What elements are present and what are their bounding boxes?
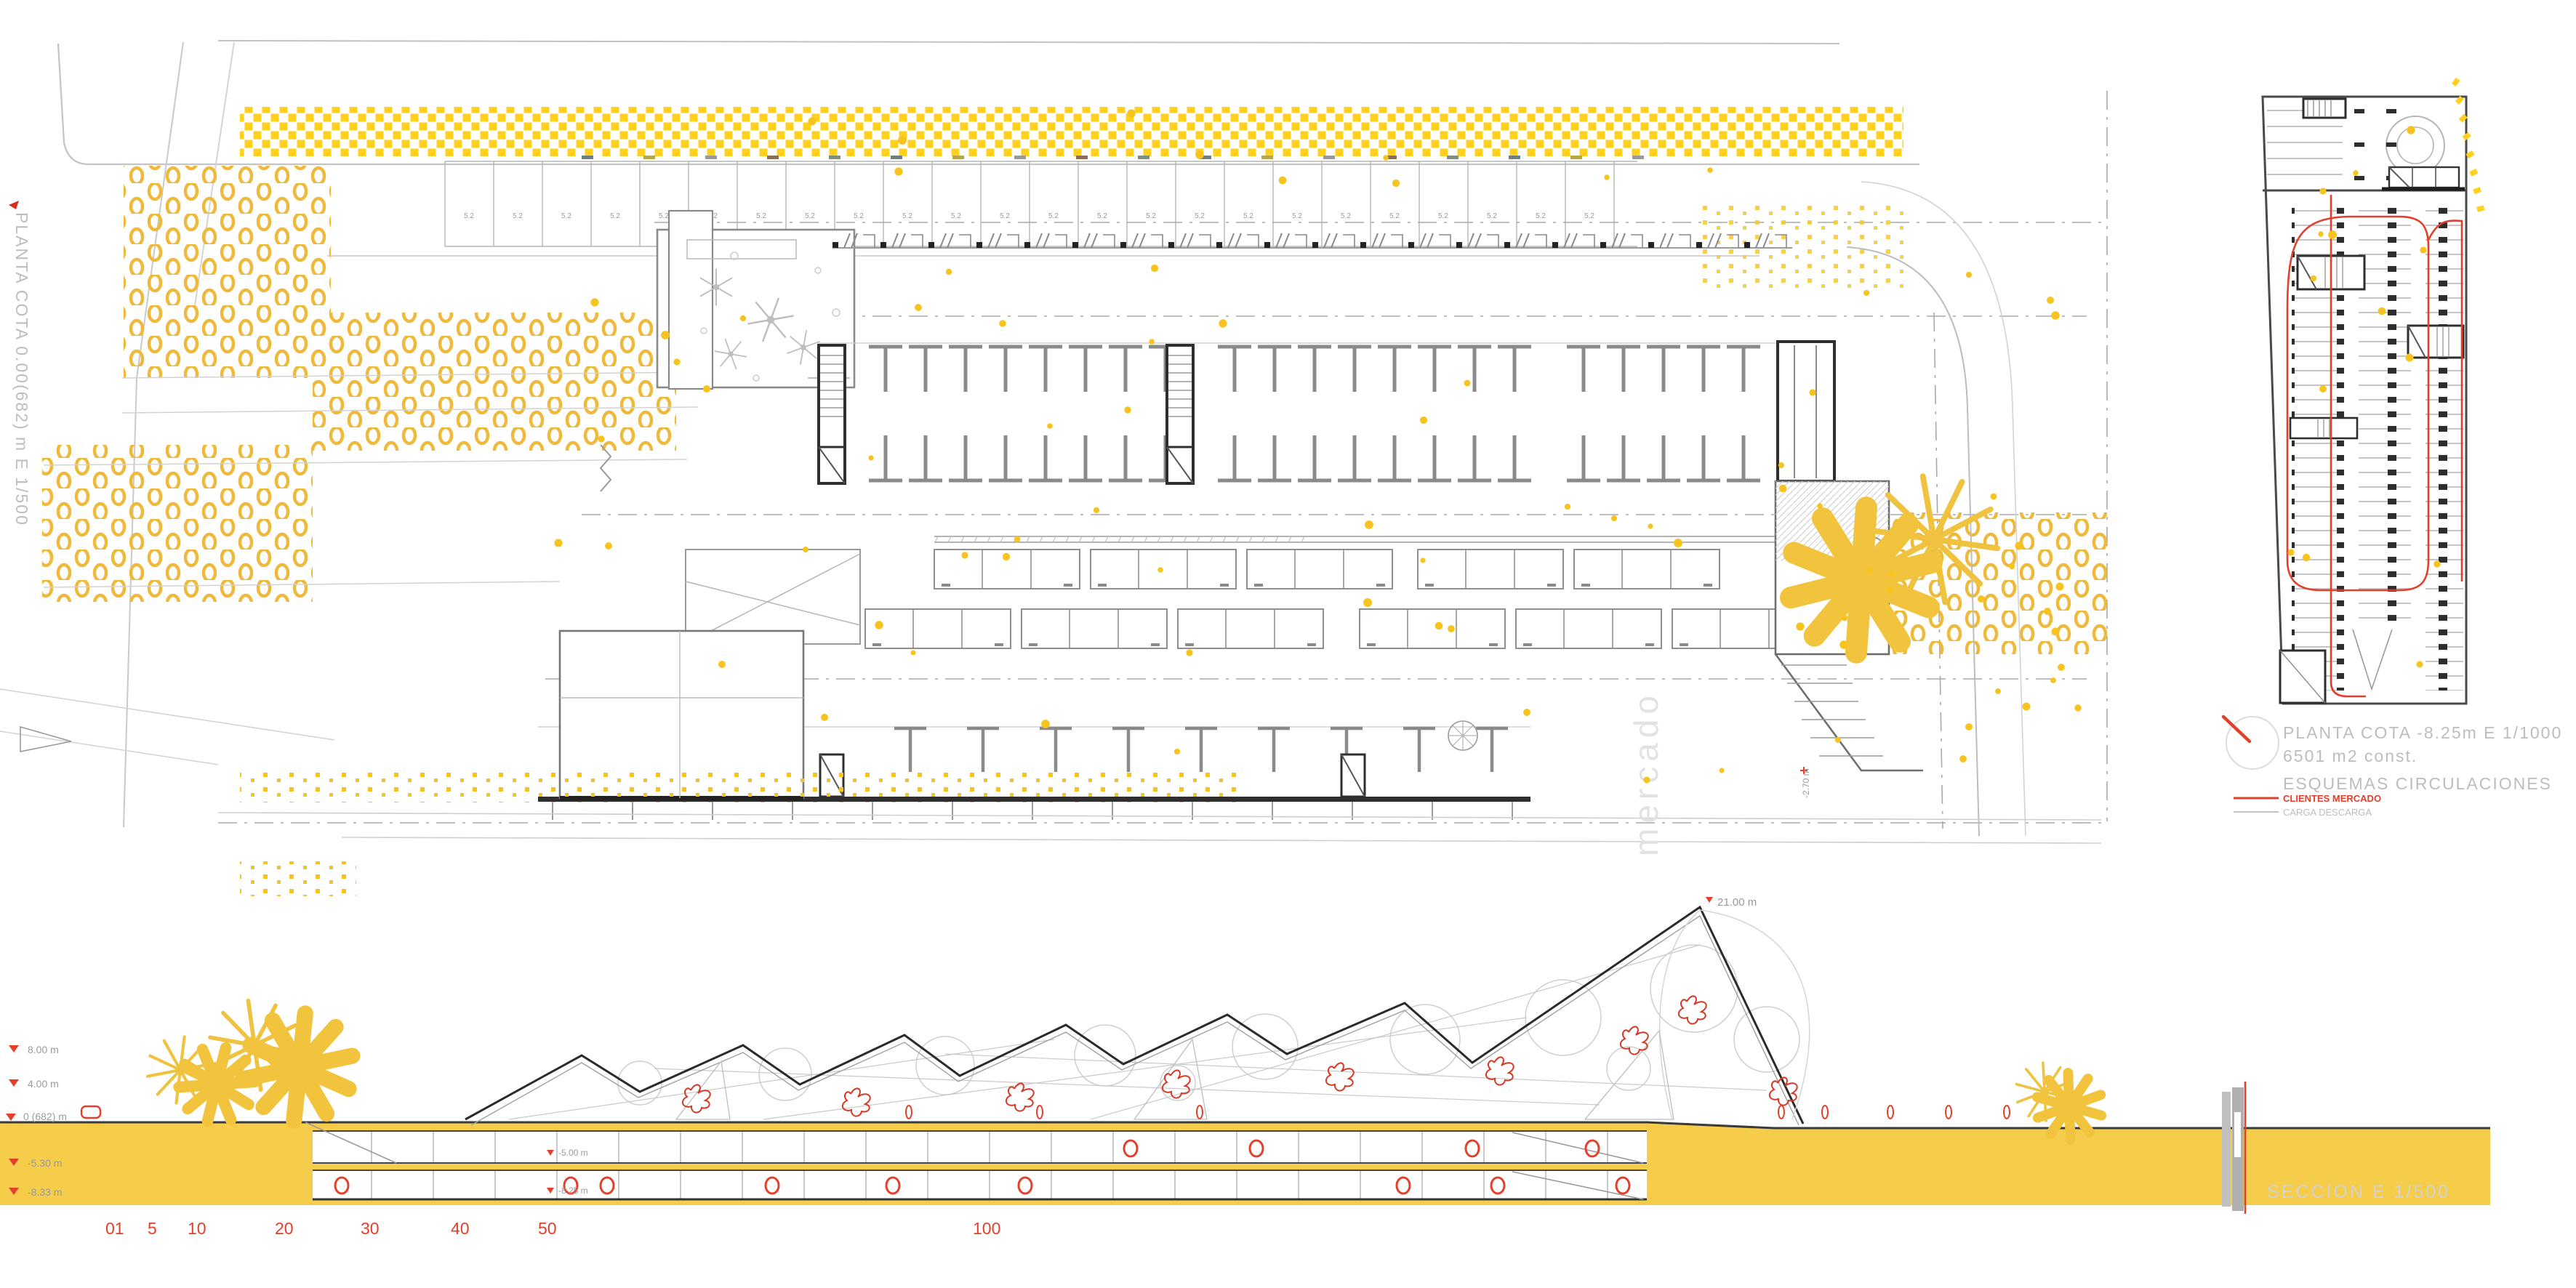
yellow-dot xyxy=(999,320,1006,327)
yellow-dot xyxy=(554,539,562,547)
yellow-dot xyxy=(1937,571,1942,576)
yellow-dot xyxy=(1978,595,1985,603)
yellow-dot xyxy=(803,547,808,552)
yellow-dot xyxy=(1151,265,1158,272)
yellow-dot xyxy=(1383,155,1389,161)
bay-dim-label: 5.2 xyxy=(1536,212,1546,220)
yellow-dot xyxy=(2407,126,2415,134)
yellow-dot xyxy=(2056,583,2064,591)
car-speck xyxy=(1323,156,1335,159)
yellow-dot xyxy=(2050,677,2056,683)
yellow-dot xyxy=(2318,231,2323,236)
mid-left-ramp xyxy=(686,550,860,644)
car-speck xyxy=(1261,156,1273,159)
level-8: 8.00 m xyxy=(28,1044,59,1055)
bay-dim-label: 5.2 xyxy=(756,212,766,220)
yellow-dot xyxy=(1886,586,1893,593)
yellow-dot xyxy=(1149,339,1155,345)
yellow-dot xyxy=(605,542,612,550)
section-elevator xyxy=(2222,1082,2245,1214)
yellow-dot xyxy=(1866,567,1873,573)
yellow-dot xyxy=(1863,290,1869,296)
mercado-watermark: mercado xyxy=(1627,691,1665,856)
parking-caption-1: PLANTA COTA -8.25m E 1/1000 xyxy=(2283,723,2562,742)
stair-core-2 xyxy=(1167,345,1193,483)
bay-dim-label: 5.2 xyxy=(1584,212,1594,220)
bay-dim-label: 5.2 xyxy=(1048,212,1059,220)
yellow-dot xyxy=(868,455,873,460)
yellow-dot xyxy=(2074,704,2081,711)
section-title: SECCION E 1/500 xyxy=(2267,1182,2450,1202)
yellow-dot xyxy=(961,552,968,558)
bay-dim-label: 5.2 xyxy=(1243,212,1253,220)
top-stair xyxy=(2303,99,2346,118)
yellow-dot xyxy=(1839,640,1848,649)
bay-dim-label: 5.2 xyxy=(561,212,571,220)
level-m5: -5.30 m xyxy=(28,1157,62,1169)
car-speck xyxy=(829,156,840,159)
yellow-dot xyxy=(1127,109,1135,117)
bay-dim-label: 5.2 xyxy=(902,212,912,220)
yellow-dot xyxy=(1643,776,1650,783)
yellow-dot xyxy=(1041,720,1050,728)
car-speck xyxy=(891,156,902,159)
legend-label-gray: CARGA DESCARGA xyxy=(2283,807,2372,818)
yellow-dot xyxy=(1648,523,1653,528)
yellow-dot xyxy=(1842,615,1848,621)
yellow-dot xyxy=(1094,507,1099,513)
car-speck xyxy=(1138,156,1149,159)
yellow-dot xyxy=(1435,622,1443,630)
yellow-dot xyxy=(910,650,915,655)
yellow-dot xyxy=(2353,170,2359,176)
yellow-dot xyxy=(2052,628,2060,636)
yellow-dot xyxy=(1523,709,1530,716)
stair-core-1 xyxy=(819,345,845,483)
car-speck xyxy=(643,156,655,159)
yellow-dot xyxy=(1835,737,1841,743)
scale-40: 40 xyxy=(451,1219,470,1238)
paving-rings-c xyxy=(313,313,676,451)
bay-dim-label: 5.2 xyxy=(1487,212,1497,220)
interior-level-2: -8.25 m xyxy=(558,1186,588,1196)
yellow-dot xyxy=(1959,755,1967,762)
yellow-dot xyxy=(894,167,902,175)
market-table xyxy=(1360,609,1505,648)
level-0: 0 (682) m xyxy=(23,1111,67,1122)
scale-50: 50 xyxy=(538,1219,557,1238)
yellow-dot xyxy=(1365,520,1373,529)
yellow-dot xyxy=(1719,768,1724,773)
yellow-dot xyxy=(703,385,710,393)
bay-dim-label: 5.2 xyxy=(1097,212,1107,220)
car-speck xyxy=(1632,156,1644,159)
market-table xyxy=(1516,609,1661,648)
bay-dim-label: 5.2 xyxy=(1146,212,1156,220)
paving-rings-a xyxy=(124,166,331,378)
car-speck xyxy=(952,156,964,159)
yellow-dot xyxy=(1219,319,1227,327)
scale-5: 5 xyxy=(148,1219,157,1238)
yellow-dot xyxy=(2023,703,2031,711)
yellow-dot xyxy=(1420,558,1425,563)
plan-level-note: -2.70 m xyxy=(1801,768,1811,798)
yellow-dot xyxy=(1966,272,1972,278)
yellow-dot xyxy=(1707,167,1713,173)
paving-rings-b xyxy=(42,445,313,602)
yellow-dot xyxy=(1817,503,1822,508)
level-4: 4.00 m xyxy=(28,1078,59,1090)
scale-100: 100 xyxy=(973,1219,1000,1238)
market-table xyxy=(865,609,1011,648)
legend-title: ESQUEMAS CIRCULACIONES xyxy=(2283,774,2552,793)
yellow-dot xyxy=(1420,416,1427,424)
market-table xyxy=(1091,550,1236,589)
yellow-dot xyxy=(1195,150,1204,159)
yellow-dot xyxy=(2311,275,2317,282)
car-speck xyxy=(1570,156,1582,159)
yellow-dot xyxy=(1448,625,1455,632)
yellow-dot xyxy=(2047,297,2054,304)
yellow-dot xyxy=(2420,246,2426,253)
car-speck xyxy=(1509,156,1520,159)
yellow-dot xyxy=(1965,723,1973,730)
interior-level-1: -5.00 m xyxy=(558,1148,588,1158)
yellow-dot xyxy=(2406,354,2414,362)
yellow-dot xyxy=(1363,598,1372,607)
yellow-dot xyxy=(598,435,604,442)
bay-dim-label: 5.2 xyxy=(854,212,864,220)
yellow-dot xyxy=(2058,664,2065,671)
yellow-dot xyxy=(898,136,907,145)
market-table xyxy=(1178,609,1323,648)
speckle-cluster xyxy=(240,861,356,896)
yellow-dot xyxy=(1186,649,1192,656)
market-table xyxy=(1574,550,1720,589)
yellow-dot xyxy=(2319,385,2327,393)
yellow-dot xyxy=(1611,515,1617,521)
yellow-dot xyxy=(2051,311,2060,320)
yellow-dot xyxy=(1124,406,1131,413)
parking-caption-2: 6501 m2 const. xyxy=(2283,746,2417,765)
bay-dim-label: 5.2 xyxy=(513,212,523,220)
yellow-dot xyxy=(915,304,922,311)
bay-dim-label: 5.2 xyxy=(805,212,815,220)
legend-label-red: CLIENTES MERCADO xyxy=(2283,793,2381,804)
yellow-dot xyxy=(1604,174,1609,180)
yellow-dot xyxy=(946,269,952,275)
yellow-dot xyxy=(718,661,726,668)
yellow-dot xyxy=(1779,485,1787,493)
bay-dim-label: 5.2 xyxy=(1438,212,1448,220)
market-table xyxy=(1022,609,1167,648)
scale-30: 30 xyxy=(361,1219,380,1238)
yellow-dot xyxy=(1047,423,1053,429)
architectural-sheet: PLANTA COTA 0.00(682) m E 1/500 5.25.25.… xyxy=(0,0,2576,1288)
yellow-dot xyxy=(1157,567,1163,572)
yellow-dot xyxy=(740,315,746,321)
market-table xyxy=(1418,550,1563,589)
level-m8: -8.33 m xyxy=(28,1186,62,1198)
car-speck xyxy=(1447,156,1458,159)
yellow-dot xyxy=(590,298,598,306)
yellow-dot xyxy=(1995,688,2001,694)
yellow-dot xyxy=(1279,177,1287,185)
yellow-dot xyxy=(2303,554,2310,561)
yellow-dot xyxy=(2417,661,2423,668)
yellow-dot xyxy=(661,331,670,339)
yellow-dot xyxy=(1778,462,1784,468)
yellow-dot xyxy=(2287,549,2294,555)
yellow-dot xyxy=(1991,494,1997,500)
yellow-dot xyxy=(808,118,816,126)
car-speck xyxy=(1076,156,1088,159)
yellow-dot xyxy=(1796,622,1804,630)
stall-strip-c xyxy=(2425,207,2463,691)
bay-dim-label: 5.2 xyxy=(1341,212,1351,220)
yellow-dot xyxy=(1809,389,1815,395)
scale-20: 20 xyxy=(275,1219,294,1238)
yellow-dot xyxy=(2319,188,2326,194)
yellow-dot xyxy=(2009,563,2015,569)
end-block xyxy=(1778,342,1834,481)
yellow-dot xyxy=(1003,553,1010,560)
plan-title-vertical: PLANTA COTA 0.00(682) m E 1/500 xyxy=(12,212,31,526)
bay-dim-label: 5.2 xyxy=(1389,212,1400,220)
speckle-band xyxy=(240,772,1243,802)
yellow-dot xyxy=(821,714,828,721)
bay-dim-label: 5.2 xyxy=(659,212,669,220)
yellow-dot xyxy=(1565,504,1570,510)
yellow-dot xyxy=(1889,571,1895,577)
scale-10: 10 xyxy=(188,1219,206,1238)
paving-rings-d xyxy=(1890,512,2108,654)
yellow-dot xyxy=(1392,180,1400,187)
bay-dim-label: 5.2 xyxy=(1195,212,1205,220)
market-table xyxy=(1247,550,1392,589)
peak-label: 21.00 m xyxy=(1717,896,1757,909)
car-speck xyxy=(705,156,717,159)
yellow-dot xyxy=(2015,542,2023,550)
yellow-dot xyxy=(875,621,883,629)
yellow-dot xyxy=(2328,230,2337,239)
scale-01: 01 xyxy=(105,1219,124,1238)
yellow-dot xyxy=(1464,380,1471,387)
bay-dim-label: 5.2 xyxy=(1000,212,1010,220)
yellow-dot xyxy=(2044,608,2051,615)
yellow-dot xyxy=(673,358,680,365)
stall-strip-b xyxy=(2359,207,2411,691)
yellow-dot xyxy=(2433,560,2440,567)
car-speck xyxy=(1014,156,1026,159)
yellow-dot xyxy=(1014,536,1020,542)
bay-dim-label: 5.2 xyxy=(1292,212,1302,220)
car-speck xyxy=(582,156,593,159)
bay-dim-label: 5.2 xyxy=(951,212,961,220)
bay-dim-label: 5.2 xyxy=(610,212,620,220)
yellow-dot xyxy=(2378,307,2386,315)
car-speck xyxy=(767,156,779,159)
street-tree-band xyxy=(240,107,1903,156)
yellow-dot xyxy=(1174,749,1180,754)
bay-dim-label: 5.2 xyxy=(464,212,474,220)
yellow-dot xyxy=(1674,539,1682,547)
